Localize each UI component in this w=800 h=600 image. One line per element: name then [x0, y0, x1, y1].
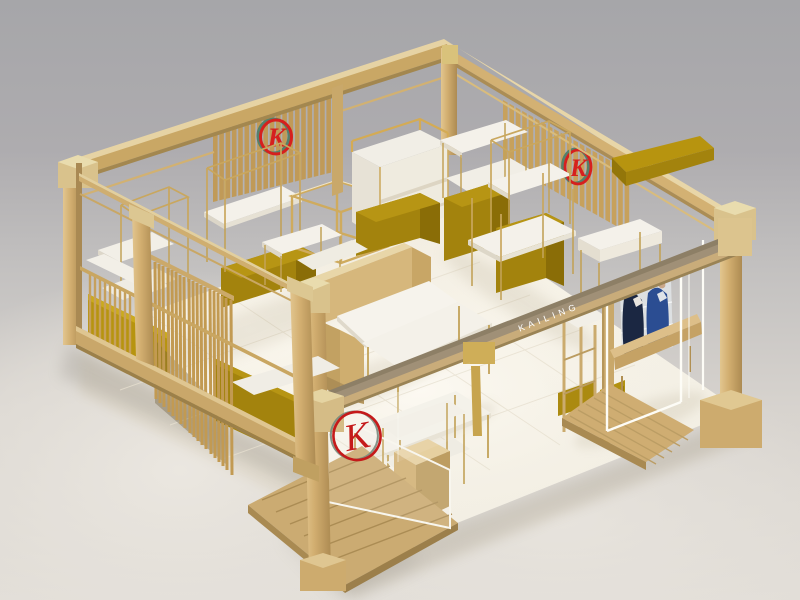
svg-text:K: K	[266, 123, 287, 153]
svg-text:K: K	[569, 155, 589, 182]
